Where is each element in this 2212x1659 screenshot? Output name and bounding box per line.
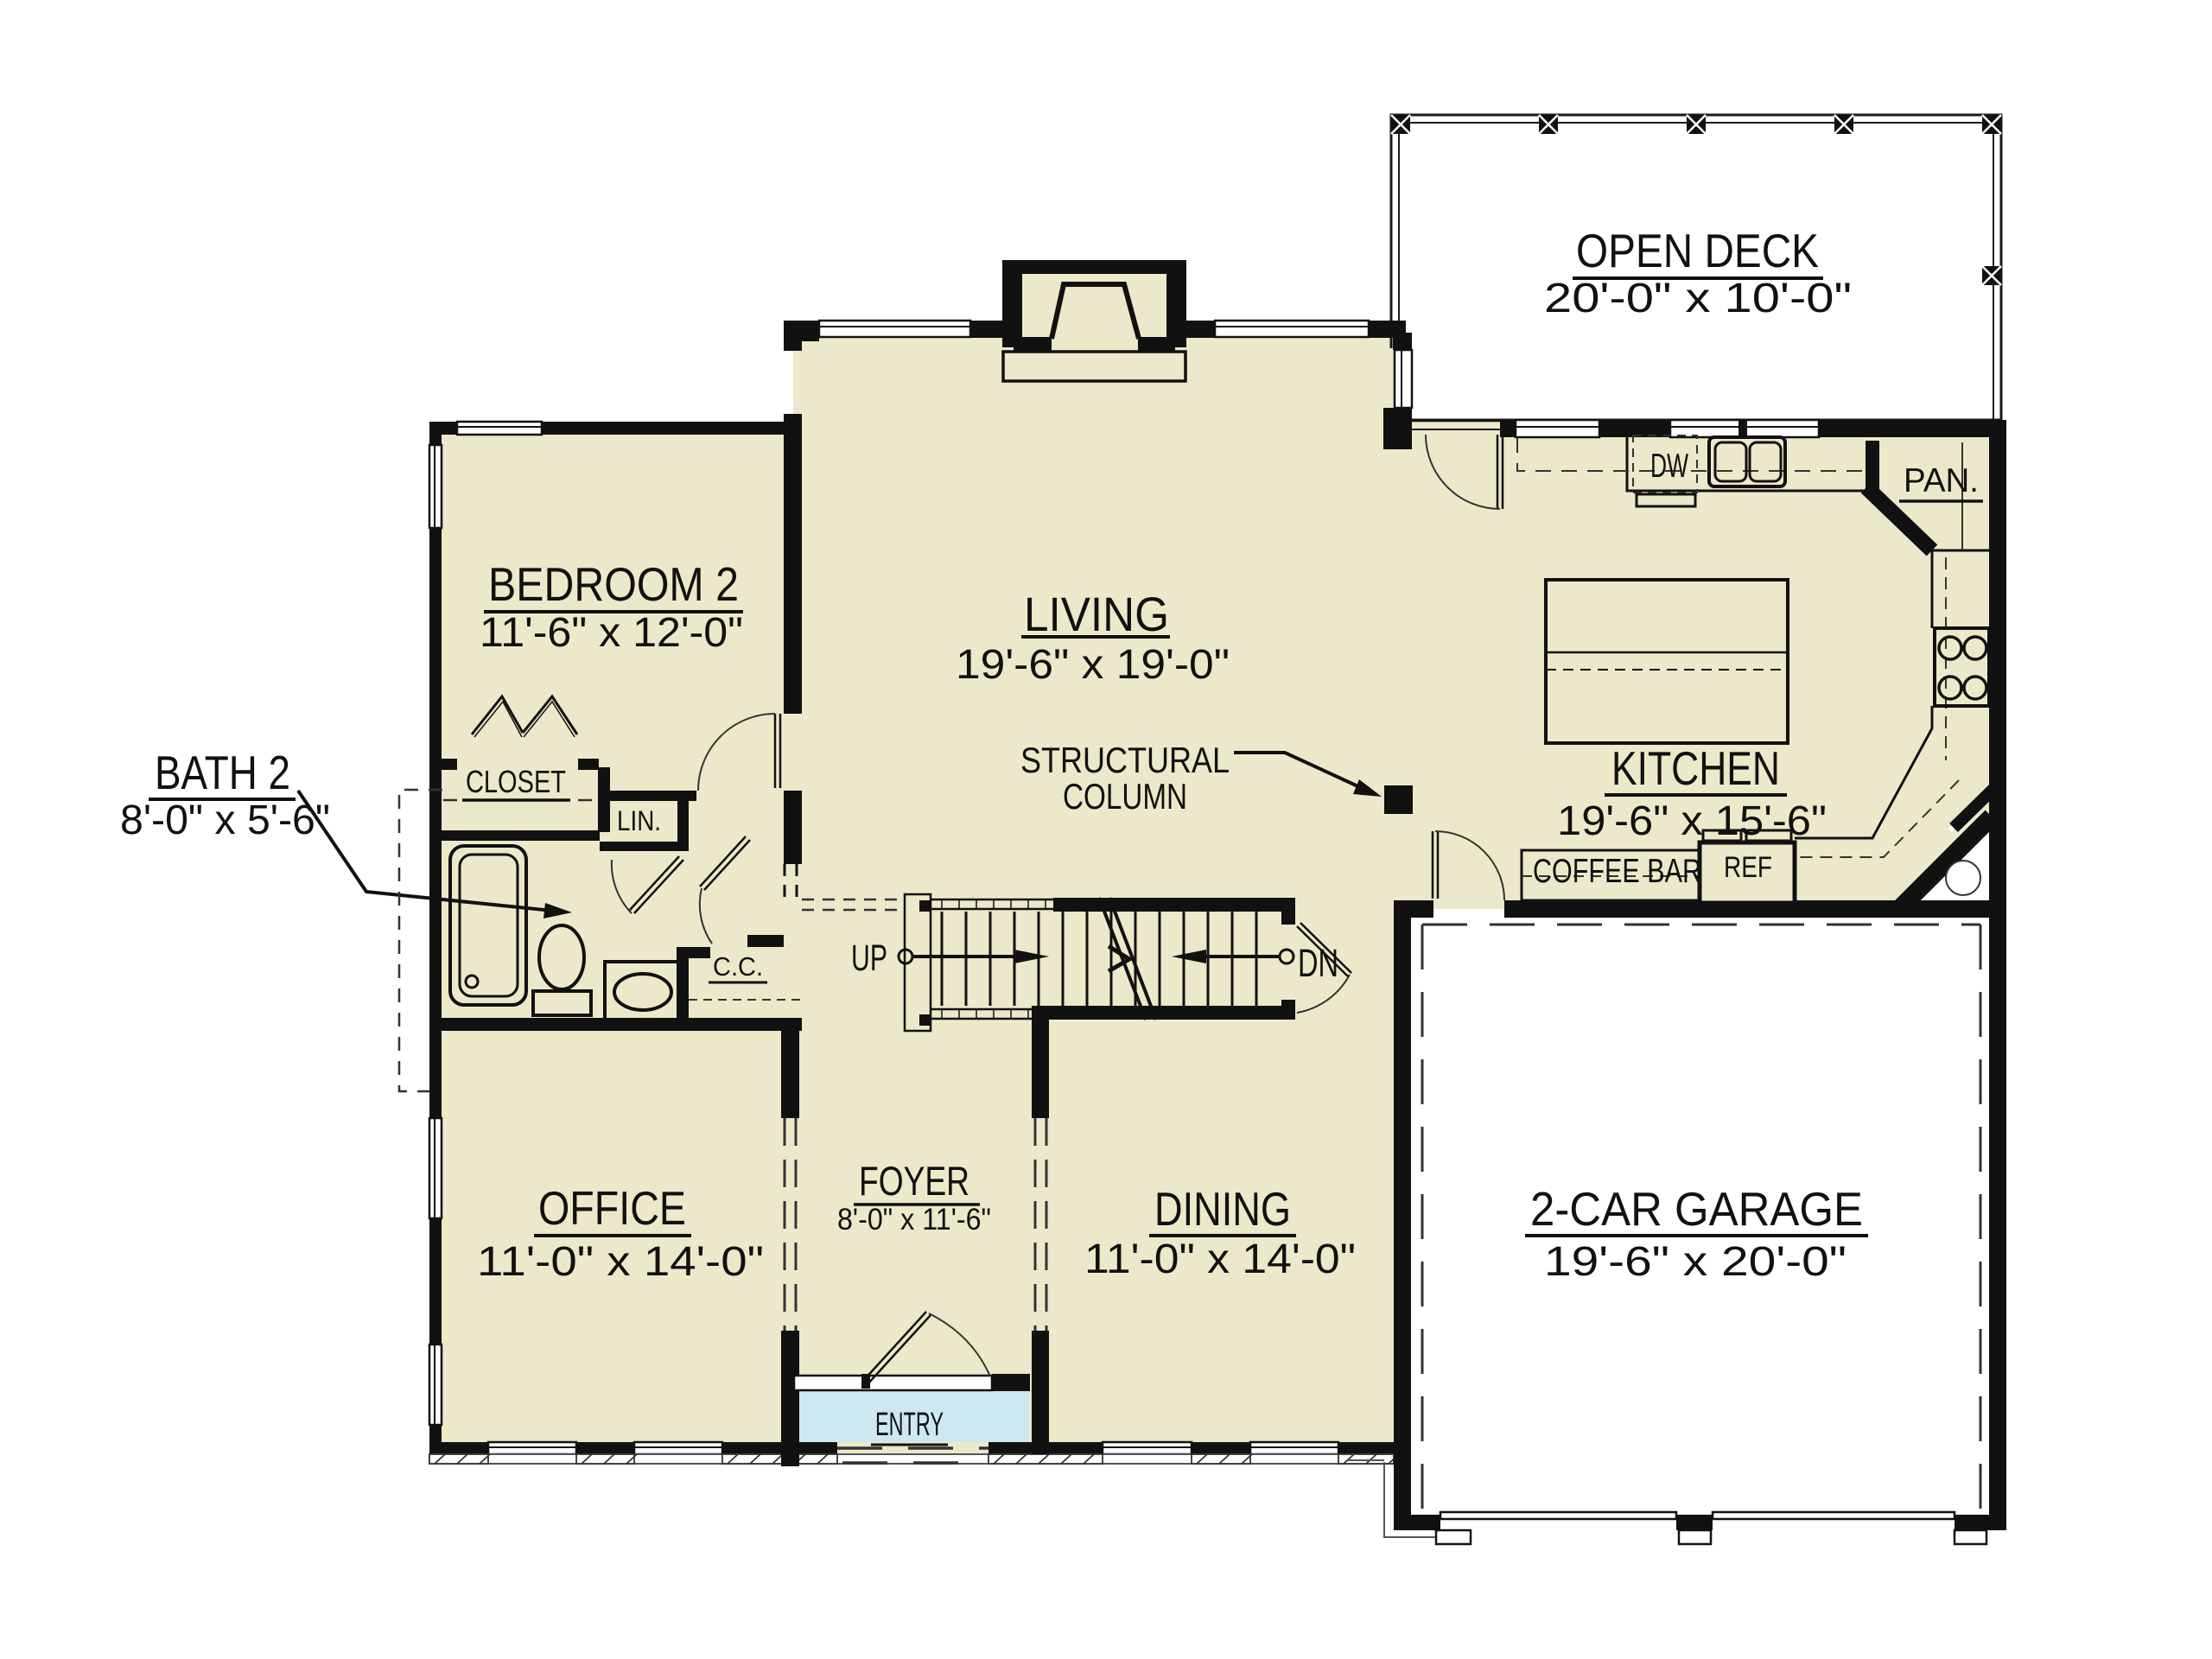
svg-text:11'-0" x 14'-0": 11'-0" x 14'-0" — [477, 1239, 764, 1285]
svg-text:8'-0" x 11'-6": 8'-0" x 11'-6" — [837, 1203, 991, 1236]
svg-text:8'-0" x 5'-6": 8'-0" x 5'-6" — [120, 798, 330, 843]
svg-text:19'-6" x 20'-0": 19'-6" x 20'-0" — [1544, 1239, 1847, 1285]
svg-text:CLOSET: CLOSET — [466, 764, 566, 799]
svg-text:BATH 2: BATH 2 — [155, 746, 290, 799]
svg-text:LIN.: LIN. — [617, 805, 661, 836]
svg-text:11'-0" x 14'-0": 11'-0" x 14'-0" — [1084, 1236, 1356, 1282]
svg-text:BEDROOM 2: BEDROOM 2 — [488, 557, 739, 611]
svg-text:DINING: DINING — [1154, 1182, 1291, 1236]
svg-text:11'-6" x 12'-0": 11'-6" x 12'-0" — [480, 610, 743, 656]
svg-text:19'-6" x 15'-6": 19'-6" x 15'-6" — [1557, 798, 1827, 844]
svg-text:UP: UP — [851, 938, 887, 979]
svg-text:ENTRY: ENTRY — [875, 1407, 944, 1443]
svg-text:DW: DW — [1650, 448, 1688, 485]
svg-text:19'-6" x 19'-0": 19'-6" x 19'-0" — [956, 642, 1230, 688]
svg-text:20'-0" x 10'-0": 20'-0" x 10'-0" — [1544, 276, 1852, 321]
svg-text:REF: REF — [1724, 851, 1772, 884]
svg-text:STRUCTURAL: STRUCTURAL — [1020, 740, 1230, 780]
svg-text:PAN.: PAN. — [1904, 462, 1979, 499]
svg-text:OFFICE: OFFICE — [538, 1181, 686, 1235]
svg-text:KITCHEN: KITCHEN — [1611, 741, 1780, 795]
svg-text:FOYER: FOYER — [859, 1158, 969, 1204]
svg-text:COLUMN: COLUMN — [1063, 776, 1187, 817]
svg-text:LIVING: LIVING — [1024, 587, 1169, 641]
svg-text:OPEN DECK: OPEN DECK — [1576, 224, 1819, 277]
svg-text:C.C.: C.C. — [713, 951, 763, 982]
svg-text:COFFEE BAR: COFFEE BAR — [1533, 853, 1701, 890]
svg-text:2-CAR GARAGE: 2-CAR GARAGE — [1530, 1182, 1863, 1236]
